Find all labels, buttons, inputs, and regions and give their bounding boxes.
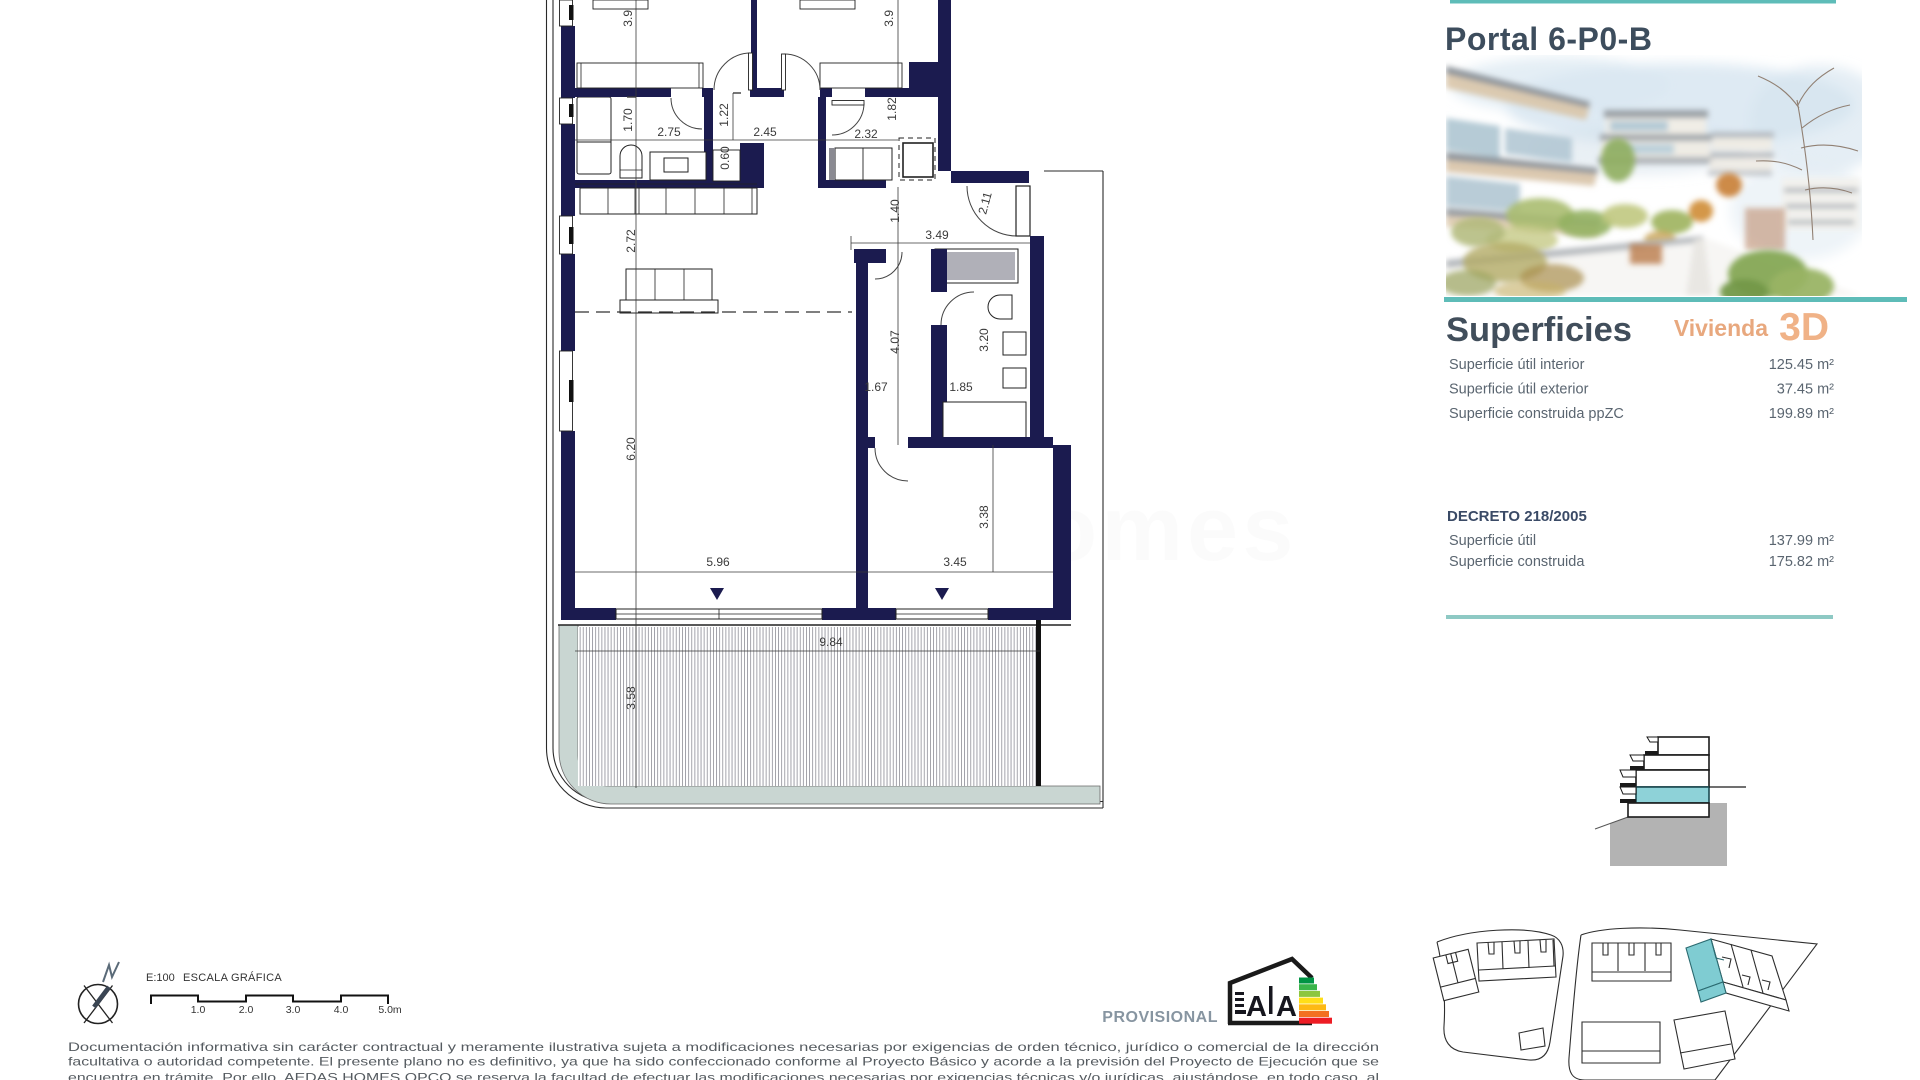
svg-text:199.89 m²: 199.89 m² <box>1769 406 1834 422</box>
svg-text:DECRETO 218/2005: DECRETO 218/2005 <box>1447 508 1587 525</box>
svg-text:3.58: 3.58 <box>624 686 638 710</box>
svg-text:3.20: 3.20 <box>977 328 991 352</box>
svg-text:1.70: 1.70 <box>621 108 635 132</box>
svg-text:encuentra en trámite. Por ello: encuentra en trámite. Por ello, AEDAS HO… <box>68 1071 1379 1080</box>
svg-text:2.0: 2.0 <box>239 1004 254 1016</box>
svg-text:2.45: 2.45 <box>753 125 777 139</box>
svg-text:3.45: 3.45 <box>943 555 967 569</box>
svg-text:1.67: 1.67 <box>864 380 888 394</box>
svg-text:1.85: 1.85 <box>949 380 973 394</box>
svg-text:1.82: 1.82 <box>885 97 899 121</box>
svg-text:Superficie construida: Superficie construida <box>1449 554 1585 570</box>
svg-text:5.0m: 5.0m <box>378 1004 402 1016</box>
svg-text:1.40: 1.40 <box>888 199 902 223</box>
svg-text:37.45 m²: 37.45 m² <box>1777 382 1834 398</box>
svg-text:9.84: 9.84 <box>819 635 843 649</box>
svg-text:4.0: 4.0 <box>334 1004 349 1016</box>
svg-text:Superficies: Superficies <box>1446 311 1632 349</box>
svg-text:3.9: 3.9 <box>621 10 635 27</box>
svg-text:0.60: 0.60 <box>718 146 732 170</box>
svg-text:Portal 6-P0-B: Portal 6-P0-B <box>1445 21 1652 57</box>
svg-text:Superficie útil: Superficie útil <box>1449 533 1536 549</box>
svg-text:6.20: 6.20 <box>624 437 638 461</box>
svg-text:A: A <box>1276 991 1297 1023</box>
svg-text:3.38: 3.38 <box>977 505 991 529</box>
svg-text:Superficie útil exterior: Superficie útil exterior <box>1449 382 1589 398</box>
svg-text:4.07: 4.07 <box>888 330 902 354</box>
svg-text:ESCALA GRÁFICA: ESCALA GRÁFICA <box>183 971 282 984</box>
svg-text:facultativa o autoridad compet: facultativa o autoridad competente. El p… <box>68 1055 1380 1069</box>
svg-text:2.75: 2.75 <box>657 125 681 139</box>
svg-text:1.0: 1.0 <box>191 1004 206 1016</box>
svg-text:125.45 m²: 125.45 m² <box>1769 357 1834 373</box>
svg-text:2.32: 2.32 <box>854 127 878 141</box>
svg-text:3D: 3D <box>1779 306 1829 349</box>
svg-text:Superficie construida ppZC: Superficie construida ppZC <box>1449 406 1624 422</box>
svg-text:1.22: 1.22 <box>717 103 731 127</box>
svg-text:E:100: E:100 <box>146 972 175 984</box>
svg-text:175.82 m²: 175.82 m² <box>1769 554 1834 570</box>
svg-text:5.96: 5.96 <box>706 555 730 569</box>
svg-text:Vivienda: Vivienda <box>1674 315 1768 341</box>
svg-text:PROVISIONAL: PROVISIONAL <box>1102 1009 1218 1026</box>
svg-text:Superficie útil interior: Superficie útil interior <box>1449 357 1585 373</box>
svg-text:A: A <box>1246 991 1267 1023</box>
svg-text:Documentación informativa sin: Documentación informativa sin carácter c… <box>68 1040 1379 1054</box>
svg-text:3.0: 3.0 <box>286 1004 301 1016</box>
svg-text:3.9: 3.9 <box>882 10 896 27</box>
svg-text:2.72: 2.72 <box>624 229 638 253</box>
svg-text:3.49: 3.49 <box>925 228 949 242</box>
svg-text:137.99 m²: 137.99 m² <box>1769 533 1834 549</box>
